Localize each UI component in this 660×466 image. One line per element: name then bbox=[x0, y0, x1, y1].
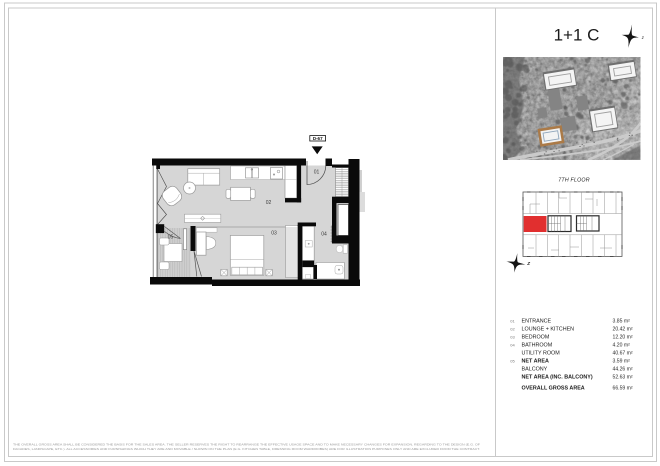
svg-text:Z: Z bbox=[526, 261, 530, 266]
svg-text:03: 03 bbox=[510, 335, 515, 340]
svg-text:BATHROOM: BATHROOM bbox=[522, 343, 553, 349]
svg-text:7TH FLOOR: 7TH FLOOR bbox=[558, 178, 590, 184]
svg-text:03: 03 bbox=[271, 231, 277, 237]
svg-text:BALCONY: BALCONY bbox=[522, 367, 548, 373]
svg-text:FACADES, LANDSCAPE, ETC.). ALL: FACADES, LANDSCAPE, ETC.). ALL ACCESSORI… bbox=[13, 447, 480, 451]
svg-text:4.20 m²: 4.20 m² bbox=[613, 343, 631, 349]
svg-text:BEDROOM: BEDROOM bbox=[522, 335, 550, 341]
svg-text:01: 01 bbox=[510, 319, 515, 324]
svg-text:04: 04 bbox=[321, 232, 327, 238]
svg-text:3.85 m²: 3.85 m² bbox=[613, 319, 631, 325]
svg-text:02: 02 bbox=[510, 327, 515, 332]
svg-text:1+1 C: 1+1 C bbox=[554, 26, 600, 45]
svg-text:66.59 m²: 66.59 m² bbox=[613, 386, 633, 392]
svg-text:05: 05 bbox=[168, 235, 174, 241]
svg-text:NET AREA: NET AREA bbox=[522, 359, 549, 365]
svg-text:3.59 m²: 3.59 m² bbox=[613, 359, 631, 365]
svg-text:D-67: D-67 bbox=[313, 136, 323, 141]
svg-text:12.20 m²: 12.20 m² bbox=[613, 335, 633, 341]
svg-text:ENTRANCE: ENTRANCE bbox=[522, 319, 552, 325]
svg-text:20.42 m²: 20.42 m² bbox=[613, 327, 633, 333]
svg-text:40.67 m²: 40.67 m² bbox=[613, 351, 633, 357]
svg-text:02: 02 bbox=[266, 200, 272, 206]
svg-text:44.26 m²: 44.26 m² bbox=[613, 367, 633, 373]
svg-text:UTILITY ROOM: UTILITY ROOM bbox=[522, 351, 561, 357]
svg-text:05: 05 bbox=[510, 359, 515, 364]
svg-text:z: z bbox=[641, 35, 645, 40]
svg-text:LOUNGE + KITCHEN: LOUNGE + KITCHEN bbox=[522, 327, 575, 333]
svg-text:04: 04 bbox=[510, 343, 515, 348]
svg-text:OVERALL GROSS AREA: OVERALL GROSS AREA bbox=[522, 386, 585, 392]
svg-text:01: 01 bbox=[314, 170, 320, 176]
svg-text:THE OVERALL GROSS AREA SHALL B: THE OVERALL GROSS AREA SHALL BE CONSIDER… bbox=[13, 443, 480, 447]
svg-text:NET AREA (INC. BALCONY): NET AREA (INC. BALCONY) bbox=[522, 375, 593, 381]
svg-text:52.63 m²: 52.63 m² bbox=[613, 375, 633, 381]
